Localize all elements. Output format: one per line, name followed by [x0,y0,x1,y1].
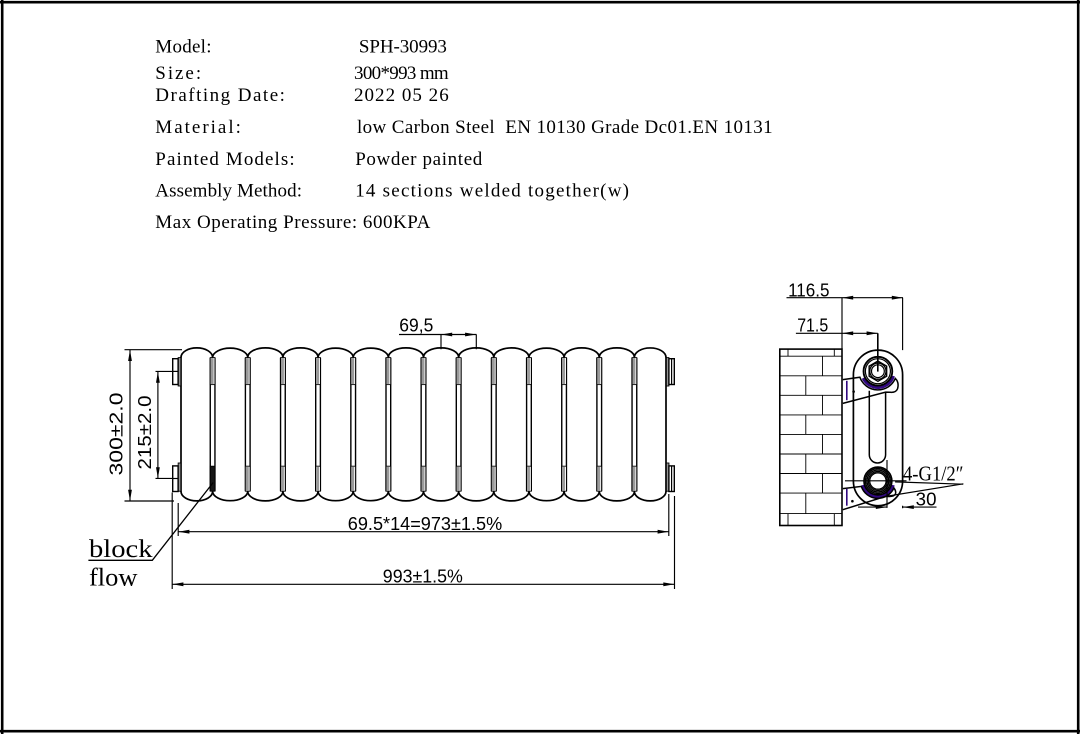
svg-text:300*993 mm: 300*993 mm [354,63,449,84]
svg-text:Assembly Method:: Assembly Method: [155,180,302,201]
svg-text:215±2.0: 215±2.0 [135,396,155,470]
svg-text:Powder painted: Powder painted [355,149,483,170]
svg-text:71.5: 71.5 [797,316,828,336]
svg-text:low Carbon Steel EN 10130 Gra: low Carbon Steel EN 10130 Grade Dc01.EN … [357,117,773,138]
svg-text:Model:: Model: [155,36,211,57]
svg-text:4-G1/2″: 4-G1/2″ [903,461,964,485]
svg-text:2022 05 26: 2022 05 26 [354,85,449,106]
svg-text:Max Operating Pressure: 600KPA: Max Operating Pressure: 600KPA [155,212,430,233]
svg-text:Material:: Material: [155,117,241,138]
svg-text:14 sections welded together(w): 14 sections welded together(w) [355,180,629,201]
svg-text:flow: flow [89,564,138,591]
svg-text:300±2.0: 300±2.0 [107,393,127,476]
svg-text:SPH-30993: SPH-30993 [359,36,447,57]
svg-text:Painted Models:: Painted Models: [155,149,294,170]
svg-text:block: block [89,536,153,563]
svg-text:Drafting Date:: Drafting Date: [155,85,285,106]
svg-text:993±1.5%: 993±1.5% [383,567,463,587]
svg-text:69,5: 69,5 [399,315,433,335]
